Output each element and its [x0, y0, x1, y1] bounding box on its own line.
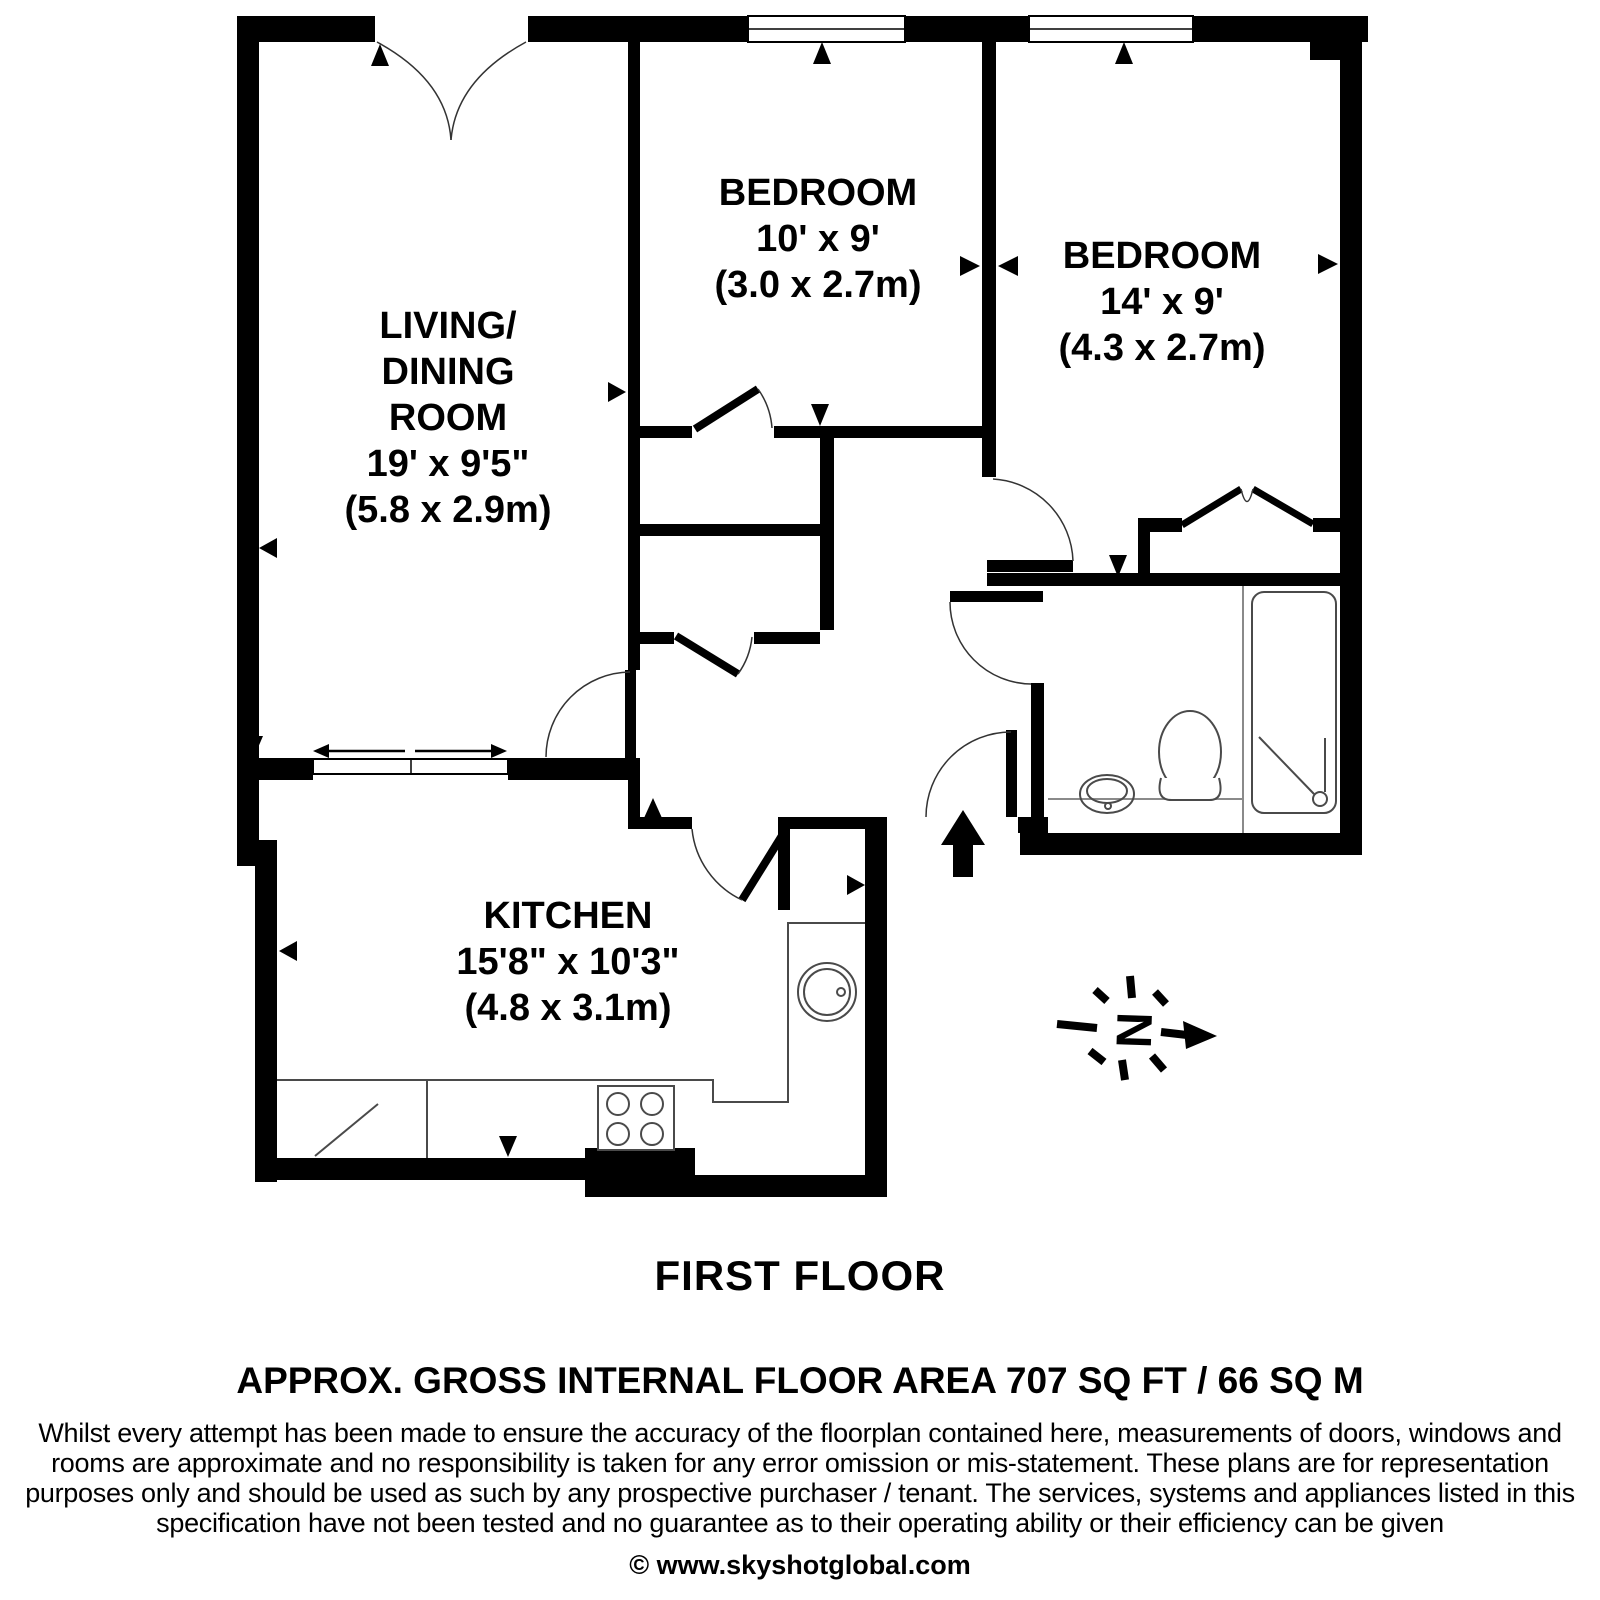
- bedroom-small-name: BEDROOM: [719, 172, 917, 214]
- marker-triangle: [279, 941, 297, 961]
- marker-triangle: [960, 256, 980, 276]
- bedroom-large-name: BEDROOM: [1063, 235, 1261, 277]
- room-labels: LIVING/ DINING ROOM 19' x 9'5" (5.8 x 2.…: [345, 172, 1266, 1029]
- north-arrow-head: [1183, 1021, 1217, 1049]
- marker-triangle: [499, 1136, 517, 1157]
- bedroom-large-label: BEDROOM 14' x 9' (4.3 x 2.7m): [1059, 235, 1266, 369]
- floorplan-page: N LIVING/ DINING ROOM 19' x 9'5" (5.8 x …: [0, 0, 1600, 1600]
- living-room-door: [546, 670, 636, 758]
- marker-triangle: [813, 42, 831, 64]
- disclaimer-line: purposes only and should be used as such…: [0, 1478, 1600, 1509]
- bedroom-large-window: [1029, 16, 1193, 42]
- marker-triangle: [644, 798, 662, 818]
- disclaimer-line: rooms are approximate and no responsibil…: [0, 1448, 1600, 1479]
- disclaimer-line: Whilst every attempt has been made to en…: [0, 1418, 1600, 1449]
- gross-area-label: APPROX. GROSS INTERNAL FLOOR AREA 707 SQ…: [0, 1360, 1600, 1402]
- bedroom-large-dims-ft: 14' x 9': [1100, 281, 1224, 323]
- toilet: [1159, 711, 1221, 800]
- entry-arrow: [941, 810, 985, 877]
- bedroom-large-dims-m: (4.3 x 2.7m): [1059, 327, 1266, 369]
- north-compass: N: [1057, 976, 1217, 1080]
- living-room-dims-ft: 19' x 9'5": [367, 443, 530, 485]
- bathroom-door: [950, 591, 1043, 684]
- kitchen-name: KITCHEN: [484, 895, 653, 937]
- bathroom-fixtures: [1048, 586, 1336, 833]
- living-room-name: ROOM: [389, 397, 507, 439]
- kitchen-dims-m: (4.8 x 3.1m): [465, 987, 672, 1029]
- cupboard-door: [676, 636, 752, 674]
- marker-triangle: [811, 404, 829, 426]
- sliding-door: [313, 744, 508, 774]
- living-room-dims-m: (5.8 x 2.9m): [345, 489, 552, 531]
- hob: [598, 1086, 674, 1150]
- marker-triangle: [998, 256, 1018, 276]
- living-room-name: DINING: [382, 351, 515, 393]
- marker-triangle: [608, 382, 626, 402]
- basin: [1080, 775, 1134, 813]
- copyright-watermark: © www.skyshotglobal.com: [0, 1550, 1600, 1581]
- kitchen-dims-ft: 15'8" x 10'3": [456, 941, 679, 983]
- bedroom-small-window: [748, 16, 905, 42]
- bedroom-small-dims-m: (3.0 x 2.7m): [715, 264, 922, 306]
- living-room-name: LIVING/: [379, 305, 517, 347]
- disclaimer-line: specification have not been tested and n…: [0, 1508, 1600, 1539]
- marker-triangle: [259, 538, 277, 558]
- living-dining-room-label: LIVING/ DINING ROOM 19' x 9'5" (5.8 x 2.…: [345, 305, 552, 531]
- bedroom-small-label: BEDROOM 10' x 9' (3.0 x 2.7m): [715, 172, 922, 306]
- shower: [1252, 592, 1336, 813]
- marker-triangle: [847, 875, 865, 895]
- kitchen-label: KITCHEN 15'8" x 10'3" (4.8 x 3.1m): [456, 895, 679, 1029]
- entrance-door: [926, 730, 1017, 817]
- kitchen-sink: [798, 963, 856, 1021]
- bedroom-small-door: [695, 389, 772, 429]
- french-door: [377, 42, 526, 140]
- floor-title: FIRST FLOOR: [0, 1252, 1600, 1300]
- north-letter: N: [1105, 1011, 1162, 1049]
- bedroom-small-dims-ft: 10' x 9': [756, 218, 880, 260]
- kitchen-door: [692, 829, 783, 900]
- closet-bifold-doors: [1182, 489, 1313, 525]
- marker-triangle: [1115, 42, 1133, 64]
- bedroom-large-door: [987, 479, 1073, 572]
- marker-triangle: [1318, 254, 1338, 274]
- corner-unit-line: [315, 1104, 378, 1156]
